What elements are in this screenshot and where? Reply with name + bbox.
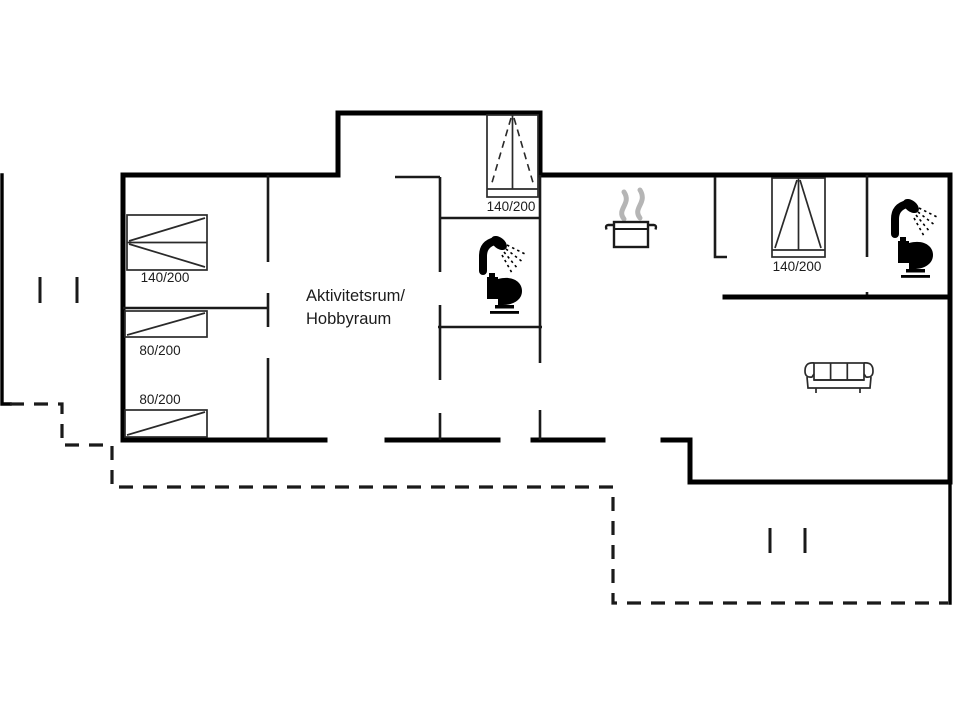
steam-icon bbox=[622, 190, 643, 219]
shower-icon bbox=[895, 196, 939, 236]
bed-double-middle bbox=[487, 115, 538, 197]
bed-size-label: 80/200 bbox=[139, 343, 180, 358]
exterior-walls bbox=[2, 113, 950, 603]
toilet-icon bbox=[487, 273, 522, 314]
floor-plan: 140/200 80/200 80/200 140/200 140/200 Ak… bbox=[0, 0, 960, 720]
bed-size-label: 80/200 bbox=[139, 392, 180, 407]
shower-icon bbox=[483, 233, 527, 273]
bed-double-left bbox=[127, 215, 207, 270]
window-marks bbox=[40, 277, 805, 553]
left-terrace-wall bbox=[2, 175, 10, 404]
cooking-pot-icon bbox=[606, 190, 656, 247]
bed-single-upper bbox=[125, 311, 207, 337]
terrace-dashed-outline bbox=[10, 404, 948, 603]
toilet-icon bbox=[898, 237, 933, 278]
bed-double-right bbox=[772, 178, 825, 257]
floor-plan-page: 140/200 80/200 80/200 140/200 140/200 Ak… bbox=[0, 0, 960, 720]
bed-single-lower bbox=[125, 410, 207, 437]
room-label-activity-line1: Aktivitetsrum/ bbox=[306, 287, 405, 305]
room-label-activity-line2: Hobbyraum bbox=[306, 310, 391, 328]
bed-size-label: 140/200 bbox=[487, 199, 536, 214]
bed-size-label: 140/200 bbox=[773, 259, 822, 274]
bed-size-label: 140/200 bbox=[141, 270, 190, 285]
sofa-icon bbox=[805, 363, 873, 393]
